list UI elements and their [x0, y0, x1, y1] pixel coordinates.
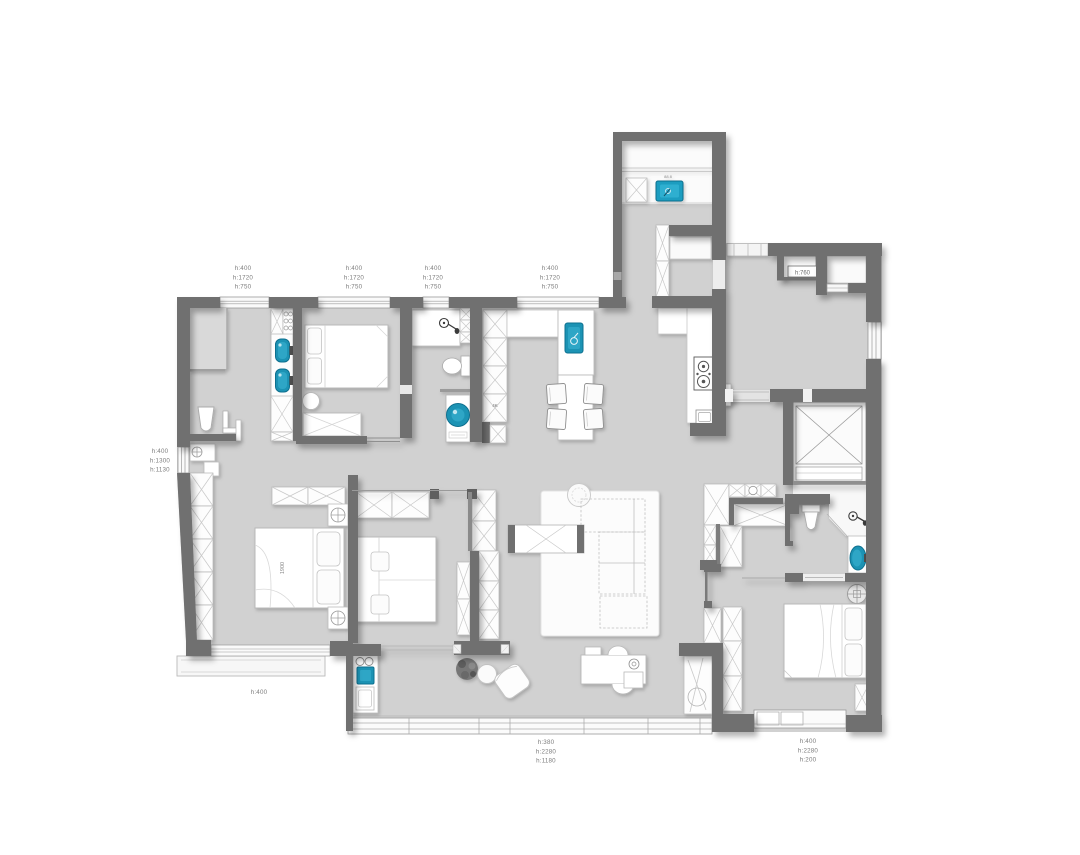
svg-text:h:400h:1720h:750: h:400h:1720h:750 — [233, 265, 253, 291]
svg-text:h:380h:2280h:1180: h:380h:2280h:1180 — [536, 739, 556, 765]
svg-text:h:400h:2280h:200: h:400h:2280h:200 — [798, 738, 818, 764]
svg-text:h:400: h:400 — [251, 689, 268, 696]
svg-text:h:400h:1300h:1130: h:400h:1300h:1130 — [150, 448, 170, 474]
svg-text:h:400h:1720h:750: h:400h:1720h:750 — [423, 265, 443, 291]
svg-text:88 8: 88 8 — [664, 174, 673, 179]
svg-text:h:400h:1720h:750: h:400h:1720h:750 — [540, 265, 560, 291]
svg-text:1900: 1900 — [280, 562, 286, 574]
svg-text:h:400h:1720h:750: h:400h:1720h:750 — [344, 265, 364, 291]
svg-text:h:760: h:760 — [795, 271, 811, 277]
svg-text:4K: 4K — [492, 403, 498, 408]
